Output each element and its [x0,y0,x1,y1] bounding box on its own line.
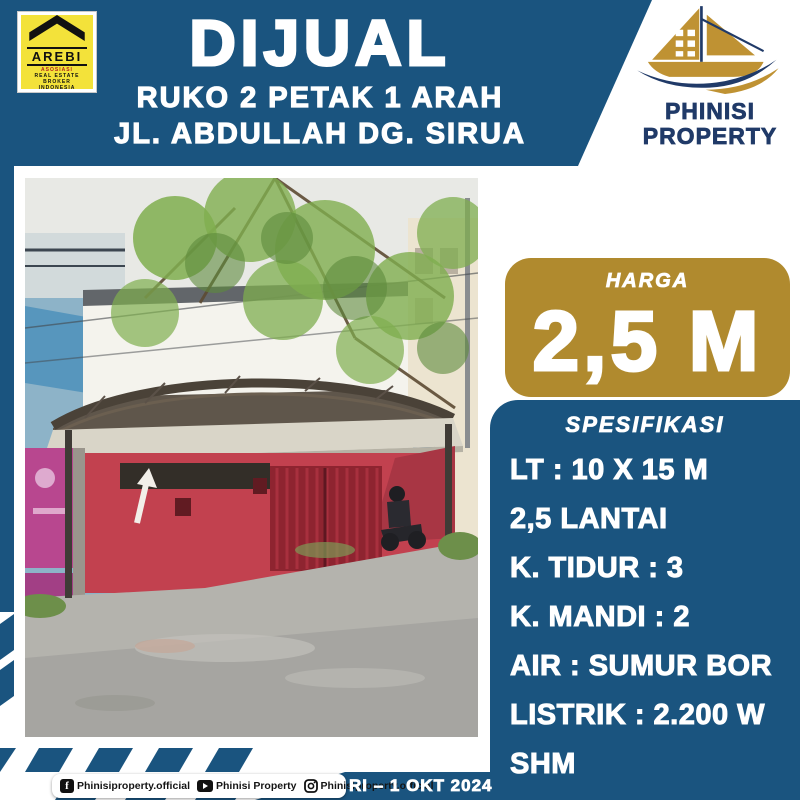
spec-item-lt: LT : 10 X 15 M [510,446,800,495]
facebook-icon: f [60,779,74,793]
brand-line1: PHINISI [622,99,798,124]
property-photo [25,178,478,737]
spec-title: SPESIFIKASI [490,400,800,438]
spec-item-ktidur: K. TIDUR : 3 [510,544,800,593]
page-title: DIJUAL [50,6,590,80]
instagram-icon [304,779,318,793]
header-titles: DIJUAL RUKO 2 PETAK 1 ARAH JL. ABDULLAH … [50,0,590,152]
facebook-handle: Phinisiproperty.official [77,780,190,792]
brand-line2: PROPERTY [622,124,798,149]
social-bar: f Phinisiproperty.official Phinisi Prope… [52,774,346,798]
subtitle-line1: RUKO 2 PETAK 1 ARAH [50,80,590,116]
subtitle-line2: JL. ABDULLAH DG. SIRUA [50,116,590,152]
flyer: AREBI ASOSIASI REAL ESTATE BROKER INDONE… [0,0,800,800]
spec-panel: SPESIFIKASI LT : 10 X 15 M 2,5 LANTAI K.… [490,400,800,800]
price-value: 2,5 M [505,293,790,389]
phinisi-property-logo: PHINISI PROPERTY [622,4,798,149]
spec-item-lantai: 2,5 LANTAI [510,495,800,544]
date-code: RI – 1 OKT 2024 [349,776,493,796]
price-label: HARGA [505,270,790,293]
spec-item-listrik: LISTRIK : 2.200 W [510,691,800,740]
youtube-icon [197,780,213,792]
spec-item-kmandi: K. MANDI : 2 [510,593,800,642]
spec-list: LT : 10 X 15 M 2,5 LANTAI K. TIDUR : 3 K… [490,446,800,789]
social-facebook: f Phinisiproperty.official [60,779,190,793]
spec-item-shm: SHM [510,740,800,789]
price-box: HARGA 2,5 M [505,258,790,397]
spec-item-air: AIR : SUMUR BOR [510,642,800,691]
youtube-handle: Phinisi Property [216,780,297,792]
social-youtube: Phinisi Property [197,780,297,792]
phinisi-ship-icon [635,4,785,94]
